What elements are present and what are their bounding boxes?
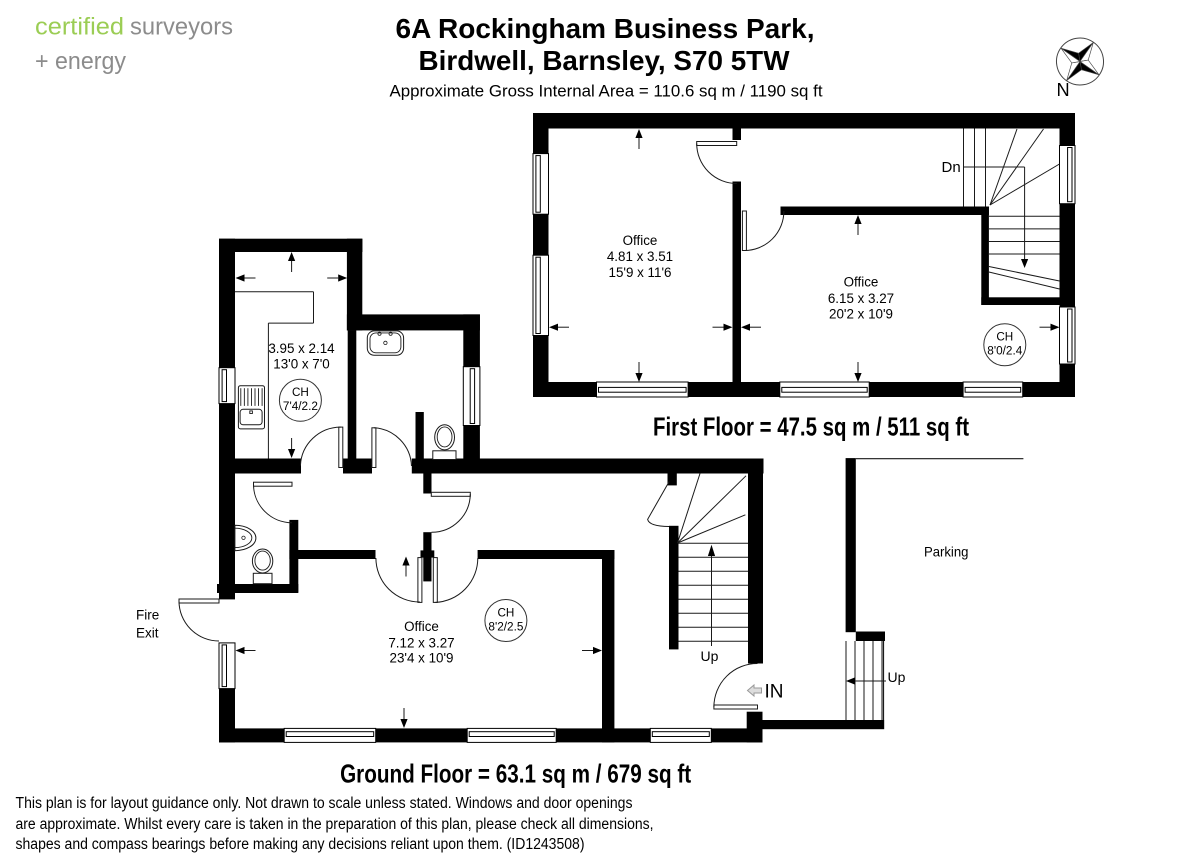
svg-text:are approximate. Whilst every: are approximate. Whilst every care is ta…: [16, 816, 654, 833]
svg-text:6.15 x 3.27: 6.15 x 3.27: [828, 291, 894, 306]
svg-text:N: N: [1057, 80, 1070, 100]
svg-text:23'4 x 10'9: 23'4 x 10'9: [390, 650, 454, 665]
svg-text:6A Rockingham Business Park,: 6A Rockingham Business Park,: [396, 13, 815, 44]
svg-text:Office: Office: [844, 275, 879, 290]
svg-text:+ energy: + energy: [35, 48, 127, 75]
svg-text:7'4/2.2: 7'4/2.2: [283, 401, 318, 413]
svg-text:Dn: Dn: [942, 159, 961, 176]
svg-text:8'0/2.4: 8'0/2.4: [987, 346, 1023, 358]
svg-text:13'0 x 7'0: 13'0 x 7'0: [273, 356, 330, 371]
svg-text:20'2 x 10'9: 20'2 x 10'9: [829, 306, 893, 321]
svg-text:Exit: Exit: [136, 626, 159, 641]
svg-text:certified: certified: [35, 14, 124, 41]
svg-text:Up: Up: [701, 648, 719, 664]
svg-text:CH: CH: [497, 606, 514, 619]
svg-text:This plan is for layout guidan: This plan is for layout guidance only. N…: [16, 795, 633, 812]
svg-text:First Floor = 47.5 sq m / 511: First Floor = 47.5 sq m / 511 sq ft: [653, 412, 969, 442]
svg-text:surveyors: surveyors: [130, 14, 233, 41]
svg-text:Birdwell, Barnsley, S70 5TW: Birdwell, Barnsley, S70 5TW: [419, 45, 790, 76]
svg-text:3.95 x 2.14: 3.95 x 2.14: [268, 341, 335, 356]
svg-text:8'2/2.5: 8'2/2.5: [488, 621, 523, 633]
svg-text:7.12 x 3.27: 7.12 x 3.27: [388, 635, 454, 650]
svg-text:Up: Up: [888, 669, 906, 685]
svg-text:IN: IN: [765, 682, 784, 703]
svg-text:Office: Office: [404, 619, 439, 634]
svg-text:shapes and compass bearings be: shapes and compass bearings before makin…: [16, 836, 585, 853]
svg-text:CH: CH: [292, 386, 309, 399]
svg-text:Fire: Fire: [136, 608, 159, 623]
svg-text:15'9 x 11'6: 15'9 x 11'6: [609, 265, 672, 280]
svg-text:Approximate Gross Internal Are: Approximate Gross Internal Area = 110.6 …: [390, 82, 823, 101]
svg-text:Parking: Parking: [924, 543, 969, 559]
svg-text:CH: CH: [996, 331, 1013, 344]
svg-text:4.81 x 3.51: 4.81 x 3.51: [607, 249, 673, 264]
svg-text:Office: Office: [623, 233, 658, 248]
svg-text:Ground Floor = 63.1 sq m / 67: Ground Floor = 63.1 sq m / 679 sq ft: [340, 759, 691, 789]
